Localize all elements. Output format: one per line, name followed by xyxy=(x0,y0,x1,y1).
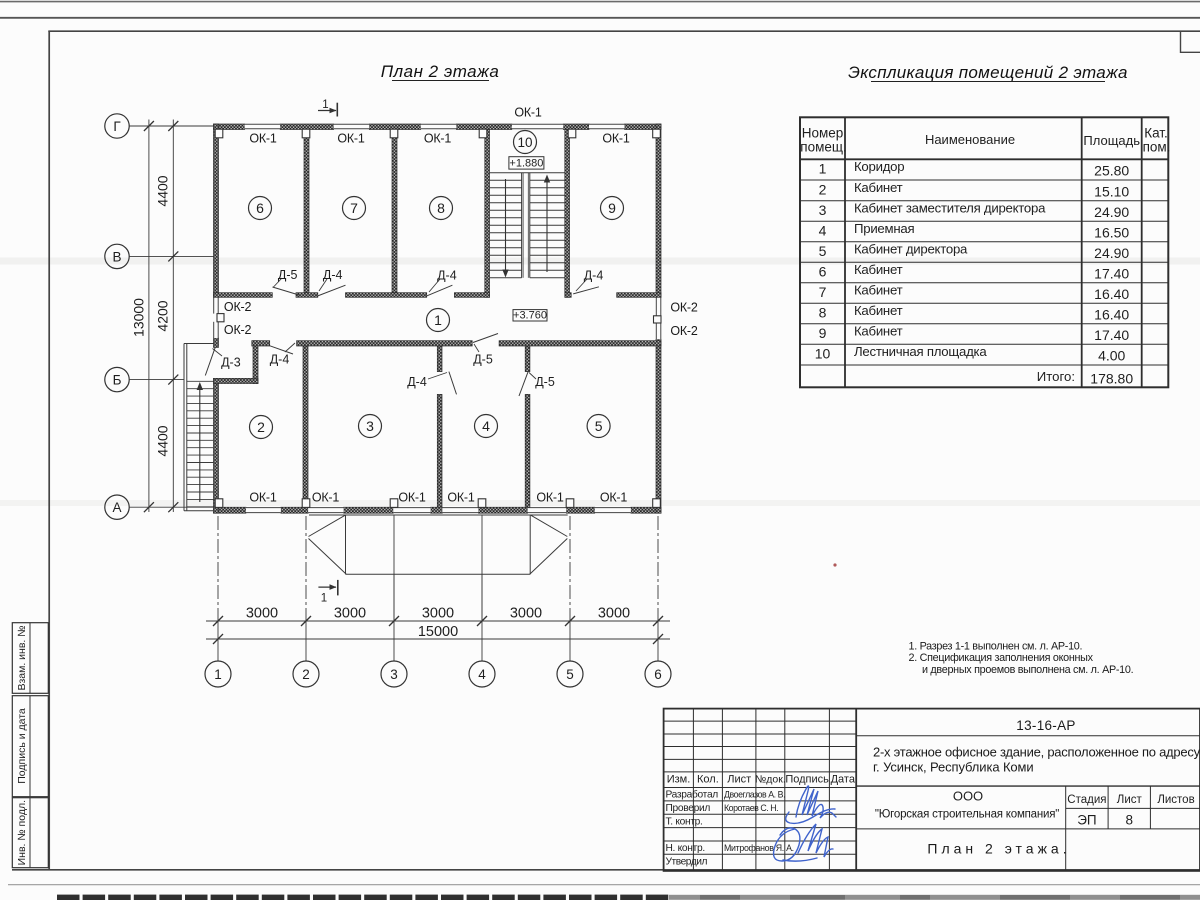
svg-text:Экспликация помещений 2 этажа: Экспликация помещений 2 этажа xyxy=(848,63,1128,82)
svg-text:17.40: 17.40 xyxy=(1094,266,1129,282)
svg-text:5: 5 xyxy=(566,667,574,682)
svg-text:Приемная: Приемная xyxy=(854,221,914,236)
svg-text:Кат.: Кат. xyxy=(1144,126,1168,141)
svg-text:2: 2 xyxy=(257,419,265,435)
svg-text:Инв. № подл.: Инв. № подл. xyxy=(16,800,28,865)
svg-text:ОК-1: ОК-1 xyxy=(337,132,365,146)
svg-text:3000: 3000 xyxy=(246,606,278,622)
svg-text:1: 1 xyxy=(434,312,442,328)
svg-text:Взам. инв. №: Взам. инв. № xyxy=(16,625,28,690)
svg-text:№док.: №док. xyxy=(755,774,786,786)
svg-text:Т. контр.: Т. контр. xyxy=(666,816,703,827)
svg-text:17.40: 17.40 xyxy=(1094,327,1129,343)
svg-text:ОК-1: ОК-1 xyxy=(398,491,426,505)
svg-text:10: 10 xyxy=(815,346,831,362)
svg-text:ОК-2: ОК-2 xyxy=(670,301,698,315)
svg-text:Изм.: Изм. xyxy=(667,774,691,786)
svg-text:3000: 3000 xyxy=(334,606,366,622)
svg-text:25.80: 25.80 xyxy=(1094,163,1129,179)
svg-text:План 2 этажа: План 2 этажа xyxy=(381,62,500,81)
svg-text:8: 8 xyxy=(437,200,445,216)
svg-text:2: 2 xyxy=(302,667,310,682)
svg-text:ОК-1: ОК-1 xyxy=(600,491,628,505)
svg-text:2: 2 xyxy=(819,181,827,197)
svg-text:ОК-1: ОК-1 xyxy=(249,491,277,505)
svg-text:3: 3 xyxy=(366,418,374,434)
svg-text:Дата: Дата xyxy=(831,774,856,786)
svg-text:А: А xyxy=(112,500,121,515)
svg-text:15000: 15000 xyxy=(418,624,458,640)
svg-text:178.80: 178.80 xyxy=(1090,371,1133,387)
svg-text:15.10: 15.10 xyxy=(1094,183,1129,199)
svg-text:Наименование: Наименование xyxy=(925,132,1015,147)
svg-text:Д-5: Д-5 xyxy=(535,375,555,389)
svg-text:16.50: 16.50 xyxy=(1094,225,1129,241)
svg-text:ОК-1: ОК-1 xyxy=(447,491,475,505)
svg-text:План 2 этажа.: План 2 этажа. xyxy=(927,841,1070,857)
svg-text:Н. контр.: Н. контр. xyxy=(666,843,705,854)
svg-text:пом.: пом. xyxy=(1143,140,1171,155)
svg-text:Д-4: Д-4 xyxy=(407,375,427,389)
svg-text:ОК-1: ОК-1 xyxy=(249,132,277,146)
svg-text:Д-5: Д-5 xyxy=(473,353,493,367)
svg-text:Двоеглазов А. В.: Двоеглазов А. В. xyxy=(724,790,785,800)
svg-text:Кол.: Кол. xyxy=(697,774,719,786)
svg-text:1: 1 xyxy=(321,593,327,605)
svg-text:Лестничная площадка: Лестничная площадка xyxy=(854,344,987,359)
svg-text:24.90: 24.90 xyxy=(1094,204,1129,220)
svg-text:Проверил: Проверил xyxy=(666,803,711,814)
svg-text:Д-4: Д-4 xyxy=(584,269,604,283)
svg-text:Д-3: Д-3 xyxy=(221,356,241,370)
svg-text:6: 6 xyxy=(819,264,827,280)
svg-text:Номер: Номер xyxy=(802,126,844,141)
svg-text:Д-4: Д-4 xyxy=(437,269,457,283)
svg-text:2-х этажное офисное здание, ра: 2-х этажное офисное здание, расположенно… xyxy=(873,745,1200,760)
svg-text:Коротаев С. Н.: Коротаев С. Н. xyxy=(724,803,778,813)
svg-text:4400: 4400 xyxy=(155,175,171,206)
svg-text:3: 3 xyxy=(390,667,398,682)
svg-text:ЭП: ЭП xyxy=(1077,813,1096,828)
svg-text:Лист: Лист xyxy=(1117,794,1143,806)
svg-text:Итого:: Итого: xyxy=(1037,369,1075,384)
svg-text:16.40: 16.40 xyxy=(1094,307,1129,323)
svg-text:13000: 13000 xyxy=(131,298,147,337)
svg-text:Г: Г xyxy=(113,119,121,134)
svg-text:Коридор: Коридор xyxy=(854,159,904,174)
svg-text:Кабинет заместителя директора: Кабинет заместителя директора xyxy=(854,201,1046,216)
svg-text:помещ.: помещ. xyxy=(800,140,846,155)
svg-text:4400: 4400 xyxy=(155,425,171,456)
svg-text:6: 6 xyxy=(654,667,662,682)
svg-text:3000: 3000 xyxy=(422,606,454,622)
svg-text:Д-4: Д-4 xyxy=(270,353,290,367)
svg-text:4: 4 xyxy=(478,667,486,682)
svg-text:ОК-1: ОК-1 xyxy=(536,491,564,505)
svg-text:7: 7 xyxy=(350,200,358,216)
svg-text:Стадия: Стадия xyxy=(1067,794,1106,806)
svg-text:Кабинет: Кабинет xyxy=(854,180,903,195)
svg-text:Кабинет: Кабинет xyxy=(854,262,903,277)
svg-text:4200: 4200 xyxy=(155,300,171,331)
svg-text:8: 8 xyxy=(1126,813,1134,828)
svg-text:ОК-2: ОК-2 xyxy=(224,300,252,314)
svg-text:ОК-1: ОК-1 xyxy=(514,106,542,120)
svg-text:6: 6 xyxy=(256,200,264,216)
svg-text:Кабинет: Кабинет xyxy=(854,283,903,298)
svg-text:Разработал: Разработал xyxy=(666,789,719,801)
svg-text:3000: 3000 xyxy=(598,606,630,622)
svg-text:В: В xyxy=(112,249,121,264)
svg-text:4: 4 xyxy=(482,418,490,434)
svg-text:1. Разрез 1-1 выполнен см. л.: 1. Разрез 1-1 выполнен см. л. АР-10. xyxy=(909,641,1083,653)
svg-text:Листов: Листов xyxy=(1157,794,1194,806)
svg-text:+1.880: +1.880 xyxy=(509,157,543,169)
svg-text:г. Усинск, Республика Коми: г. Усинск, Республика Коми xyxy=(873,760,1034,775)
svg-text:+3.760: +3.760 xyxy=(513,310,547,322)
svg-text:Кабинет: Кабинет xyxy=(854,324,903,339)
svg-text:ОК-1: ОК-1 xyxy=(424,132,452,146)
svg-text:3: 3 xyxy=(819,202,827,218)
svg-text:9: 9 xyxy=(608,200,616,216)
svg-text:13-16-АР: 13-16-АР xyxy=(1016,718,1075,733)
svg-text:8: 8 xyxy=(819,305,827,321)
svg-text:3000: 3000 xyxy=(510,606,542,622)
svg-text:2. Спецификация заполнения око: 2. Спецификация заполнения оконных xyxy=(909,652,1094,664)
svg-text:ООО: ООО xyxy=(953,789,983,804)
svg-text:ОК-1: ОК-1 xyxy=(312,491,340,505)
svg-text:Митрофанов Я. А.: Митрофанов Я. А. xyxy=(724,843,794,853)
svg-text:Утвердил: Утвердил xyxy=(666,857,708,868)
svg-text:Кабинет: Кабинет xyxy=(854,303,903,318)
svg-text:4.00: 4.00 xyxy=(1098,348,1125,364)
svg-text:ОК-2: ОК-2 xyxy=(224,323,252,337)
svg-text:Д-5: Д-5 xyxy=(278,268,298,282)
svg-text:9: 9 xyxy=(819,325,827,341)
svg-text:ОК-2: ОК-2 xyxy=(670,324,698,338)
svg-text:"Югорская строительная компани: "Югорская строительная компания" xyxy=(875,809,1059,821)
svg-text:Подпись и дата: Подпись и дата xyxy=(16,708,28,784)
svg-text:1: 1 xyxy=(819,161,827,177)
svg-text:10: 10 xyxy=(517,135,532,150)
svg-text:Кабинет директора: Кабинет директора xyxy=(854,242,968,257)
svg-text:5: 5 xyxy=(819,243,827,259)
svg-text:Лист: Лист xyxy=(727,774,751,786)
svg-text:Подпись: Подпись xyxy=(785,774,829,786)
svg-text:Площадь: Площадь xyxy=(1083,133,1140,148)
svg-text:4: 4 xyxy=(819,223,827,239)
svg-text:5: 5 xyxy=(595,418,603,434)
svg-text:16.40: 16.40 xyxy=(1094,286,1129,302)
svg-text:1: 1 xyxy=(322,99,328,111)
svg-text:7: 7 xyxy=(819,284,827,300)
svg-text:Д-4: Д-4 xyxy=(323,268,343,282)
svg-text:1: 1 xyxy=(214,667,222,682)
svg-text:и дверных проемов выполнена см: и дверных проемов выполнена см. л. АР-10… xyxy=(922,664,1134,676)
svg-text:Б: Б xyxy=(113,373,122,388)
svg-text:24.90: 24.90 xyxy=(1094,245,1129,261)
svg-text:ОК-1: ОК-1 xyxy=(602,132,630,146)
